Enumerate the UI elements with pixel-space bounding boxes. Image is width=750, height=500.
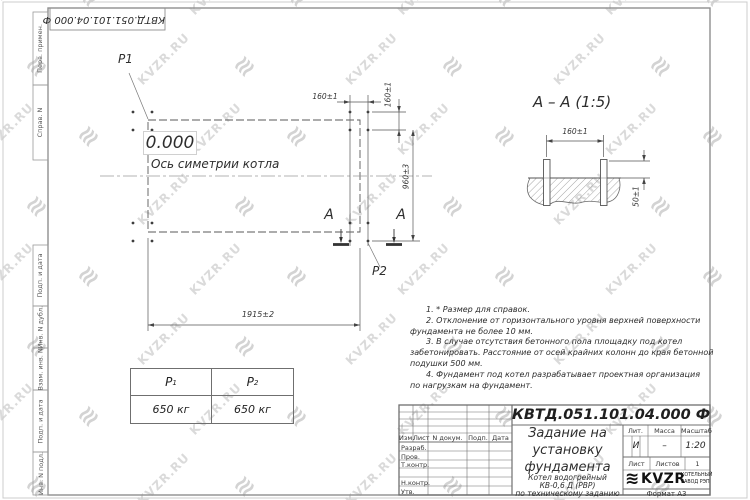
- drawing-linework: [0, 0, 750, 500]
- sheet-label: Лист: [623, 460, 650, 468]
- mass-value: –: [648, 441, 681, 451]
- col-doc: N докум.: [428, 434, 467, 442]
- anchor-bolt-left: [544, 160, 551, 206]
- title-line-2: установку: [512, 443, 623, 458]
- note-line: забетонировать. Расстояние от осей крайн…: [410, 348, 710, 359]
- role-prov: Пров.: [401, 453, 420, 461]
- axis-of-symmetry-label: Ось симетрии котла: [151, 157, 279, 171]
- plan-dim-1915-text: 1915±2: [228, 310, 288, 319]
- role-nkontr: Н.контр.: [401, 479, 430, 487]
- kvzr-logo-icon: ≋: [625, 469, 639, 489]
- load-table-header-p2: P2: [212, 369, 293, 396]
- sheets-label: Листов: [650, 460, 685, 468]
- col-list: Лист: [413, 434, 428, 442]
- mass-label: Масса: [648, 427, 681, 435]
- load-table-value-p1: 650 кг: [131, 396, 212, 423]
- plan-dim-160-side-text: 160±1: [381, 74, 396, 114]
- p2-label: P2: [372, 264, 387, 278]
- note-line: фундамента не более 10 мм.: [410, 327, 710, 338]
- logo-subtitle-line1: КОТЕЛЬНЫЙ: [681, 473, 712, 478]
- note-line: 3. В случае отсутствия бетонного пола пл…: [410, 337, 710, 348]
- col-data: Дата: [489, 434, 512, 442]
- logo-subtitle-line2: ЗАВОД РЭП: [681, 480, 710, 485]
- elevation-mark: 0.000: [143, 131, 197, 155]
- format-label: Формат А3: [630, 490, 703, 498]
- note-line: 1. * Размер для справок.: [410, 305, 710, 316]
- sheets-value: 1: [685, 460, 710, 468]
- plan-dim-160-top-text: 160±1: [306, 92, 344, 101]
- margin-label-podp-data-2: Подп. и дата: [33, 390, 48, 452]
- load-table-header-p1: P1: [131, 369, 212, 396]
- title-block-doc-number: КВТД.051.101.04.000 Ф: [512, 405, 710, 425]
- anchor-bolt-right: [601, 160, 608, 206]
- scale-value: 1:20: [681, 441, 710, 451]
- lit-value: И: [632, 441, 640, 451]
- section-title: А – А (1:5): [533, 93, 611, 111]
- margin-label-perv-primen: Перв. примен.: [33, 12, 48, 85]
- col-izm: Изм.: [399, 434, 413, 442]
- note-line: по нагрузкам на фундамент.: [410, 381, 710, 392]
- margin-label-sprav-n: Справ. N: [33, 85, 48, 160]
- plan-dim-960-text: 960±3: [399, 151, 414, 201]
- product-line-3: по техническому заданию: [512, 489, 623, 498]
- section-letter-left: А: [320, 207, 338, 223]
- role-razrab: Разраб.: [401, 444, 427, 452]
- load-table-value-p2: 650 кг: [212, 396, 293, 423]
- load-table: P1 P2 650 кг 650 кг: [130, 368, 294, 424]
- section-dim-160-text: 160±1: [550, 127, 600, 136]
- kvzr-logo-text: KVZR: [641, 471, 686, 487]
- corner-doc-number: КВТД.051.101.04.000 Ф: [50, 8, 165, 30]
- section-dim-50-text: 50±1: [629, 171, 644, 221]
- lit-label: Лит.: [623, 427, 648, 435]
- drawing-sheet: KVZR.RU≋KVZR.RU≋KVZR.RU≋KVZR.RU≋≋KVZR.RU…: [0, 0, 750, 500]
- note-line: 4. Фундамент под котел разрабатывает про…: [410, 370, 710, 381]
- technical-notes: 1. * Размер для справок. 2. Отклонение о…: [410, 305, 710, 391]
- note-line: подушки 500 мм.: [410, 359, 710, 370]
- margin-label-podp-data-1: Подп. и дата: [33, 245, 48, 306]
- title-line-1: Задание на: [512, 426, 623, 441]
- p1-label: P1: [118, 52, 133, 66]
- margin-label-inv-dubl: Инв. N дубл.: [33, 306, 48, 348]
- section-letter-right: А: [392, 207, 410, 223]
- scale-label: Масштаб: [681, 427, 710, 435]
- margin-label-vzam-inv: Взам. инв. N: [33, 348, 48, 390]
- margin-label-inv-podl: Инв. N подл.: [34, 452, 49, 495]
- section-dim-160: [547, 135, 604, 157]
- role-utv: Утв.: [401, 488, 415, 496]
- col-podp: Подп.: [467, 434, 489, 442]
- note-line: 2. Отклонение от горизонтального уровня …: [410, 316, 710, 327]
- role-tkontr: Т.контр.: [401, 461, 429, 469]
